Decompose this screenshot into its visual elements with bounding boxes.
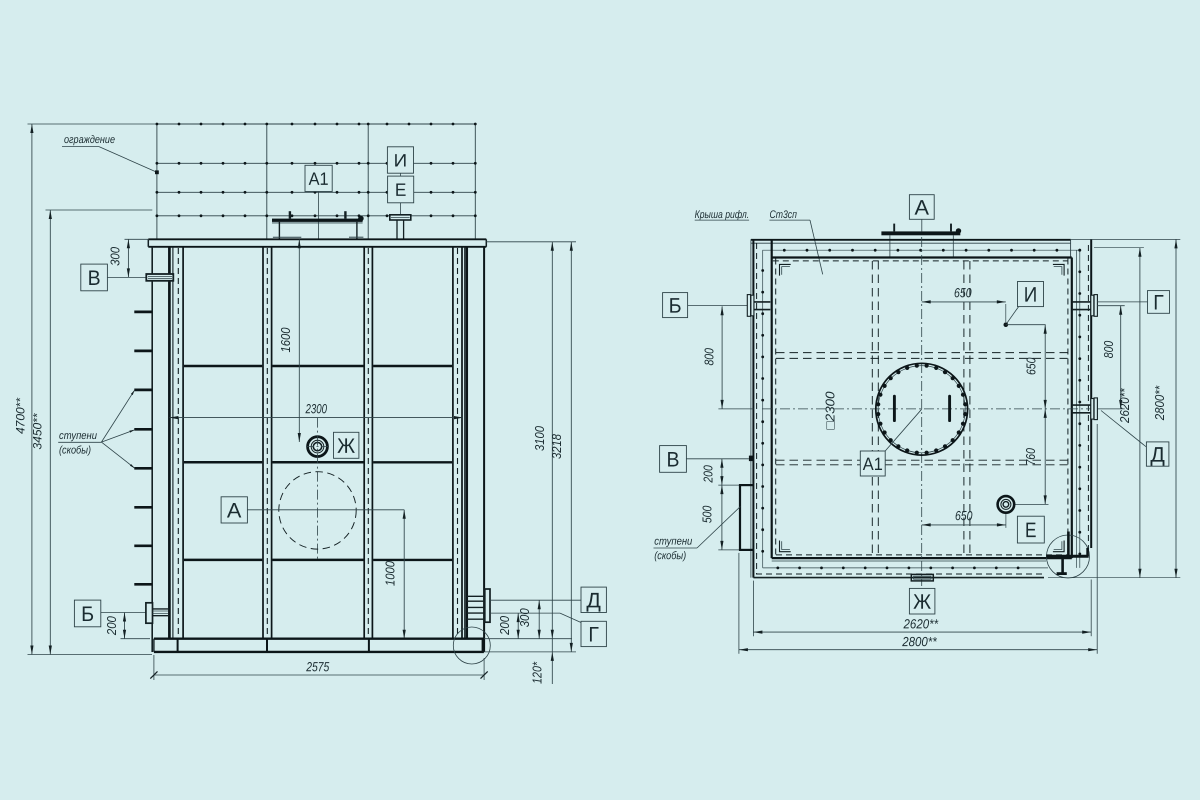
- svg-text:2575: 2575: [306, 659, 330, 674]
- svg-text:ограждение: ограждение: [64, 134, 115, 146]
- svg-text:Г: Г: [1153, 291, 1164, 314]
- svg-text:ступени: ступени: [59, 430, 97, 442]
- svg-text:И: И: [1024, 284, 1038, 307]
- svg-text:650: 650: [954, 285, 972, 300]
- svg-text:В: В: [666, 448, 679, 471]
- svg-text:(скобы): (скобы): [59, 444, 91, 456]
- svg-text:3450**: 3450**: [31, 413, 45, 449]
- svg-text:(скобы): (скобы): [654, 550, 686, 562]
- svg-text:И: И: [394, 150, 408, 170]
- svg-text:Крыша рифл.: Крыша рифл.: [695, 209, 750, 221]
- svg-text:Б: Б: [669, 295, 682, 318]
- svg-text:200: 200: [497, 615, 512, 635]
- svg-text:2620**: 2620**: [903, 616, 939, 631]
- svg-text:2300: 2300: [305, 401, 328, 416]
- svg-text:Д: Д: [586, 589, 601, 612]
- svg-text:Е: Е: [1025, 519, 1037, 542]
- svg-text:В: В: [88, 267, 101, 290]
- svg-text:3218: 3218: [549, 433, 564, 459]
- svg-text:760: 760: [1023, 448, 1038, 466]
- svg-text:300: 300: [517, 608, 532, 628]
- svg-text:А1: А1: [863, 454, 883, 474]
- svg-text:2800**: 2800**: [901, 634, 937, 649]
- svg-text:Б: Б: [81, 603, 94, 626]
- svg-text:300: 300: [107, 246, 122, 266]
- svg-text:120*: 120*: [529, 661, 544, 684]
- svg-text:200: 200: [700, 465, 715, 484]
- svg-text:А: А: [915, 197, 930, 220]
- svg-text:Е: Е: [395, 180, 407, 200]
- svg-text:2620**: 2620**: [1117, 388, 1132, 424]
- svg-text:□2300: □2300: [822, 391, 837, 430]
- svg-text:4700**: 4700**: [13, 398, 27, 434]
- svg-text:Д: Д: [1150, 444, 1165, 467]
- svg-text:200: 200: [104, 616, 119, 636]
- svg-text:ступени: ступени: [654, 536, 692, 548]
- svg-text:650: 650: [955, 508, 973, 523]
- svg-text:800: 800: [702, 348, 717, 366]
- svg-text:А1: А1: [309, 169, 329, 189]
- svg-text:1600: 1600: [278, 327, 293, 353]
- svg-text:2800**: 2800**: [1152, 385, 1167, 421]
- svg-text:Г: Г: [588, 623, 599, 646]
- svg-text:Ж: Ж: [913, 591, 932, 614]
- svg-text:3100: 3100: [532, 425, 547, 451]
- svg-text:650: 650: [1024, 357, 1039, 375]
- svg-text:500: 500: [700, 505, 715, 523]
- svg-text:1000: 1000: [383, 560, 398, 586]
- svg-text:800: 800: [1101, 340, 1116, 358]
- svg-text:А: А: [227, 499, 242, 522]
- svg-text:Ж: Ж: [337, 435, 356, 458]
- svg-text:Ст3сп: Ст3сп: [769, 209, 797, 221]
